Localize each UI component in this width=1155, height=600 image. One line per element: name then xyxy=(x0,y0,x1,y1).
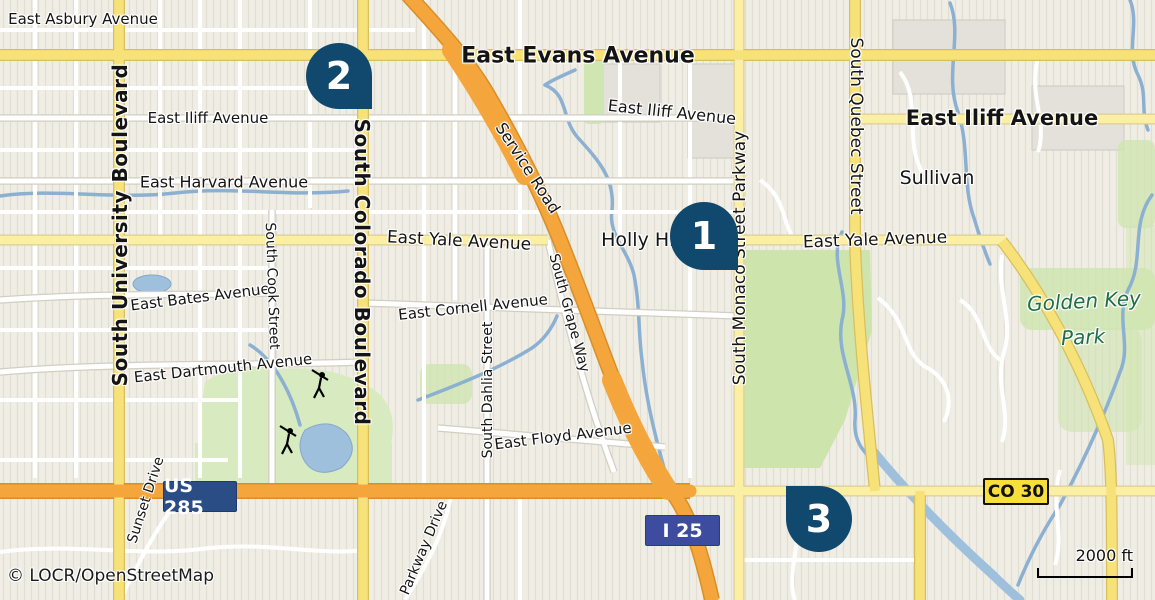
street-label: South Quebec Street xyxy=(846,37,866,214)
scale-bar-label: 2000 ft xyxy=(1037,546,1133,565)
street-label: East Iliff Avenue xyxy=(906,106,1098,130)
route-badge-us285: US 285 xyxy=(163,481,237,512)
street-label: East Harvard Avenue xyxy=(140,173,308,192)
marker-number: 3 xyxy=(806,497,832,541)
place-label: Sullivan xyxy=(900,167,975,189)
route-badge-i25: I 25 xyxy=(645,515,720,546)
map-marker-3[interactable]: 3 xyxy=(786,486,852,552)
street-label: South Colorado Boulevard xyxy=(350,119,374,426)
street-label: South University Boulevard xyxy=(108,64,132,387)
map-canvas[interactable]: East Asbury AvenueEast Evans AvenueEast … xyxy=(0,0,1155,600)
street-label: East Iliff Avenue xyxy=(148,109,269,127)
street-label: South Dahlia Street xyxy=(480,322,496,459)
street-label: East Asbury Avenue xyxy=(8,10,158,28)
map-attribution: © LOCR/OpenStreetMap xyxy=(7,566,214,586)
map-marker-2[interactable]: 2 xyxy=(306,43,372,109)
map-marker-1[interactable]: 1 xyxy=(670,202,738,270)
route-badge-label: CO 30 xyxy=(988,482,1045,502)
golf-pond xyxy=(300,424,352,472)
scale-bar: 2000 ft xyxy=(1037,546,1133,578)
park-label: Park xyxy=(1060,324,1105,350)
street-label: East Evans Avenue xyxy=(461,44,695,69)
route-badge-co30: CO 30 xyxy=(983,478,1049,505)
route-badge-label: I 25 xyxy=(662,520,702,542)
scale-bar-line xyxy=(1037,568,1133,578)
marker-number: 2 xyxy=(326,54,352,98)
route-badge-label: US 285 xyxy=(164,475,236,519)
marker-number: 1 xyxy=(691,214,717,258)
